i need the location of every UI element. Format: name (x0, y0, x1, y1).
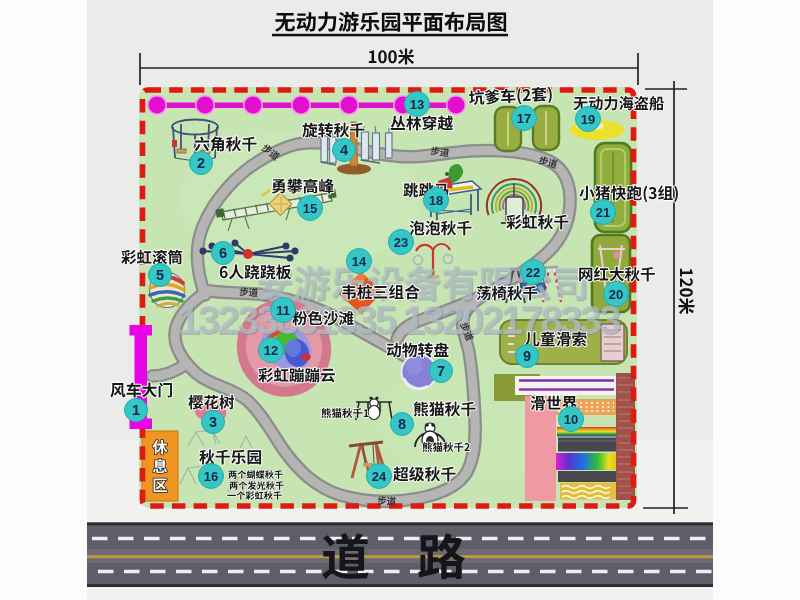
svg-text:24: 24 (372, 469, 387, 484)
svg-text:2: 2 (197, 155, 205, 171)
svg-text:17: 17 (517, 111, 531, 126)
svg-text:5: 5 (156, 267, 164, 283)
svg-text:21: 21 (596, 205, 610, 220)
svg-text:23: 23 (394, 235, 408, 250)
svg-text:9: 9 (523, 348, 531, 364)
svg-text:20: 20 (609, 287, 623, 302)
svg-text:15: 15 (303, 201, 317, 216)
svg-text:14: 14 (352, 254, 367, 269)
svg-text:4: 4 (340, 142, 348, 158)
svg-text:3: 3 (209, 414, 217, 430)
svg-text:19: 19 (581, 112, 595, 127)
svg-text:13: 13 (410, 97, 424, 112)
svg-text:7: 7 (437, 363, 445, 379)
svg-text:8: 8 (398, 416, 406, 432)
svg-text:6: 6 (219, 245, 227, 261)
svg-text:18: 18 (429, 193, 443, 208)
svg-text:10: 10 (564, 412, 578, 427)
svg-text:1: 1 (132, 402, 140, 418)
svg-text:11: 11 (276, 303, 290, 318)
svg-text:22: 22 (526, 265, 540, 280)
svg-text:12: 12 (264, 343, 278, 358)
svg-text:16: 16 (204, 469, 218, 484)
